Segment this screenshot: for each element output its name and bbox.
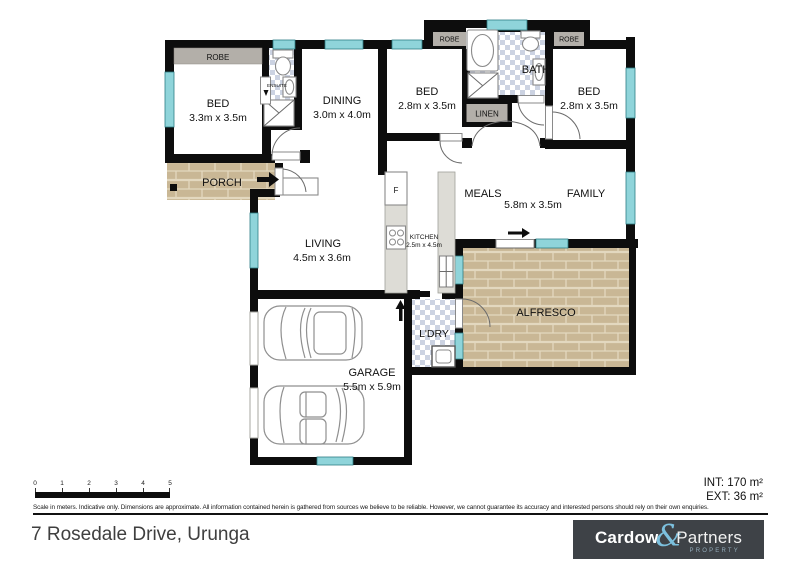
slider-arrow-head [522, 228, 530, 238]
family-label: FAMILY [567, 188, 606, 200]
logo-word-cardow: Cardow [595, 528, 659, 548]
robe-bed3-label: ROBE [559, 37, 579, 44]
area-summary: INT: 170 m² EXT: 36 m² [704, 476, 763, 504]
car-bottom [264, 386, 364, 444]
agency-logo: Cardow & Partners PROPERTY [573, 520, 764, 559]
kitchen-label: KITCHEN [410, 234, 439, 241]
slider-arrow [508, 232, 522, 235]
meals-label: MEALS [464, 188, 501, 200]
bed2-dims: 2.8m x 3.5m [398, 100, 456, 112]
hall-cupboard [278, 178, 318, 195]
laundry-label: L'DRY [419, 328, 449, 340]
scale-tick-label: 4 [137, 480, 149, 487]
car-top [264, 306, 362, 360]
laundry-tub [432, 346, 455, 367]
alfresco-label: ALFRESCO [516, 307, 576, 319]
entry-arrow [257, 177, 269, 182]
meals-family-dims: 5.8m x 3.5m [504, 199, 562, 211]
robe-bed1-label: ROBE [207, 53, 230, 62]
bed1-label: BED [207, 98, 230, 110]
bed3-dims: 2.8m x 3.5m [560, 100, 618, 112]
scale-tick-label: 3 [110, 480, 122, 487]
scale-bar-line [35, 492, 170, 498]
bed1-dims: 3.3m x 3.5m [189, 112, 247, 124]
logo-tagline: PROPERTY [690, 548, 741, 554]
sliding-door [496, 240, 534, 249]
logo-word-partners: Partners [676, 528, 742, 548]
garage-label: GARAGE [348, 367, 395, 379]
dining-dims: 3.0m x 4.0m [313, 109, 371, 121]
external-area: EXT: 36 m² [704, 490, 763, 504]
kitchen-dims: 2.5m x 4.5m [406, 242, 442, 249]
garage-entry-arrow [399, 308, 403, 321]
bath-label: BATH [522, 64, 551, 76]
living-label: LIVING [305, 238, 341, 250]
fridge-label: F [394, 186, 399, 195]
internal-area: INT: 170 m² [704, 476, 763, 490]
robe-bed2-label: ROBE [440, 37, 460, 44]
scale-bar: 0 1 2 3 4 5 [35, 480, 170, 500]
living-dims: 4.5m x 3.6m [293, 252, 351, 264]
laundry-door-marker [420, 291, 430, 297]
scale-tick-label: 5 [164, 480, 176, 487]
bed2-label: BED [416, 86, 439, 98]
scale-tick-label: 2 [83, 480, 95, 487]
floorplan-page: BED 3.3m x 3.5m DINING 3.0m x 4.0m BED 2… [0, 0, 800, 565]
linen-label: LINEN [475, 110, 499, 119]
scale-tick-label: 1 [56, 480, 68, 487]
ensuite-label: ENSUITE [267, 83, 287, 88]
porch-label: PORCH [202, 177, 242, 189]
cooktop [387, 226, 406, 249]
scale-tick-label: 0 [29, 480, 41, 487]
bed3-label: BED [578, 86, 601, 98]
garage-dims: 5.5m x 5.9m [343, 381, 401, 393]
disclaimer-text: Scale in meters. Indicative only. Dimens… [33, 504, 778, 511]
floorplan-svg: BED 3.3m x 3.5m DINING 3.0m x 4.0m BED 2… [0, 0, 800, 475]
property-address: 7 Rosedale Drive, Urunga [31, 524, 250, 546]
footer-divider [33, 513, 768, 515]
dining-label: DINING [323, 95, 362, 107]
